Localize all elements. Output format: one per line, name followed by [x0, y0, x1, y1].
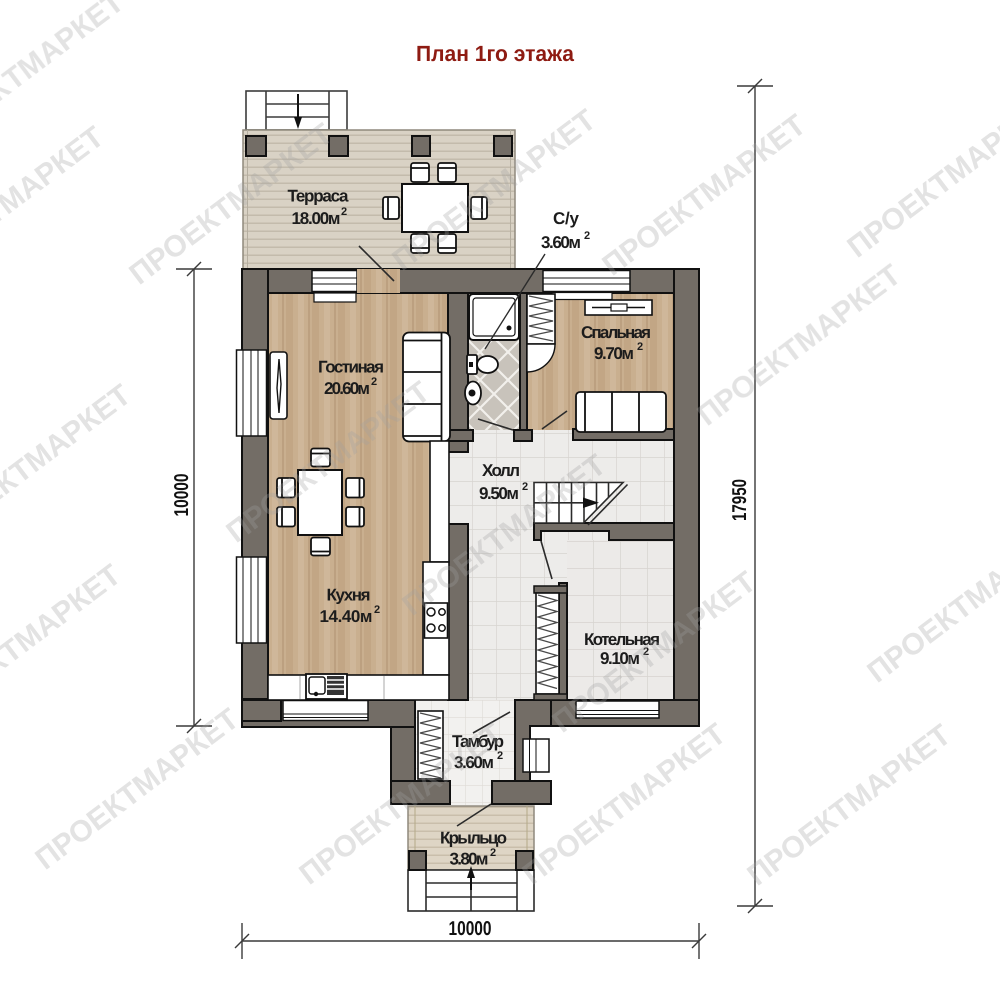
svg-text:Гостиная: Гостиная [318, 358, 384, 377]
svg-text:Холл: Холл [482, 461, 520, 480]
svg-text:С/у: С/у [553, 209, 580, 228]
svg-text:14.40м: 14.40м [320, 607, 373, 626]
svg-text:9.70м: 9.70м [594, 344, 634, 363]
svg-text:9.50м: 9.50м [479, 484, 519, 503]
svg-text:Терраса: Терраса [288, 187, 350, 206]
svg-text:3.80м: 3.80м [450, 850, 489, 869]
svg-text:2: 2 [371, 376, 377, 388]
svg-text:2: 2 [341, 206, 347, 218]
svg-text:План 1го этажа: План 1го этажа [416, 41, 575, 66]
svg-text:2: 2 [490, 847, 496, 859]
svg-text:10000: 10000 [449, 918, 492, 940]
svg-text:Кухня: Кухня [327, 586, 371, 605]
svg-text:2: 2 [637, 341, 643, 353]
svg-text:18.00м: 18.00м [292, 209, 341, 228]
svg-text:10000: 10000 [171, 474, 193, 517]
svg-text:3.60м: 3.60м [541, 233, 581, 252]
svg-text:2: 2 [522, 481, 528, 493]
svg-text:Спальная: Спальная [581, 323, 651, 342]
svg-text:2: 2 [374, 604, 380, 616]
svg-text:Крыльцо: Крыльцо [440, 829, 507, 848]
svg-text:20.60м: 20.60м [324, 379, 370, 398]
svg-text:17950: 17950 [729, 479, 751, 521]
svg-text:2: 2 [584, 230, 590, 242]
